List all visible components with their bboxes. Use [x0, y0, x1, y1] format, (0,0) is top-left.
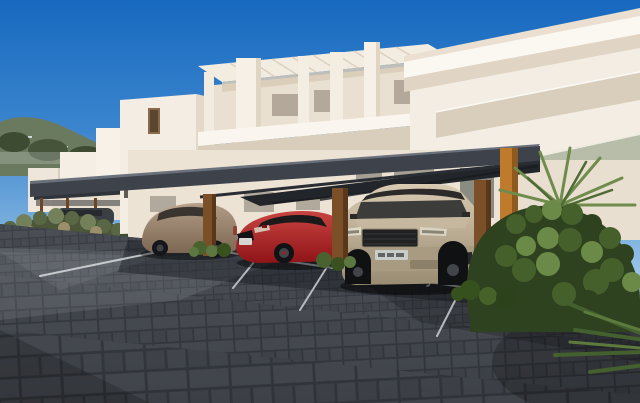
license-plate	[375, 250, 408, 260]
license-plate	[239, 238, 252, 245]
architectural-render-image: 29 30	[0, 0, 640, 403]
side-mirror	[462, 212, 470, 217]
side-mirror	[262, 225, 267, 228]
windshield	[355, 200, 469, 219]
side-mirror	[350, 214, 357, 219]
window	[272, 94, 298, 116]
tail-light	[233, 226, 237, 235]
champagne-suv	[340, 184, 484, 295]
hood	[355, 217, 469, 230]
wood-post	[332, 188, 348, 266]
grille	[362, 229, 418, 247]
